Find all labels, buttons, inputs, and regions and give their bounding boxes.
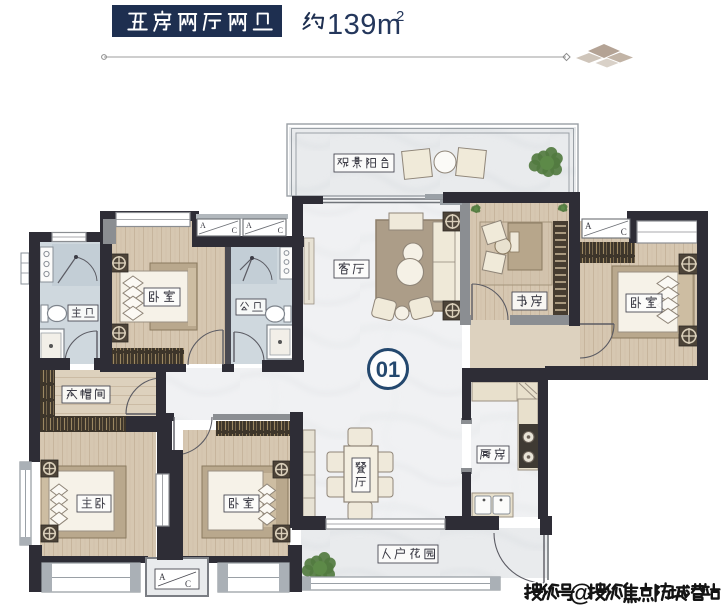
svg-text:C: C [621, 227, 627, 237]
svg-text:2: 2 [396, 8, 404, 25]
svg-text:01: 01 [376, 357, 400, 382]
svg-text:A: A [200, 221, 206, 230]
svg-text:139m: 139m [327, 9, 402, 41]
svg-text:A: A [159, 572, 166, 582]
svg-text:C: C [278, 226, 283, 235]
svg-text:C: C [232, 226, 237, 235]
svg-text:C: C [185, 579, 191, 589]
svg-text:A: A [585, 221, 592, 231]
svg-text:A: A [246, 221, 252, 230]
